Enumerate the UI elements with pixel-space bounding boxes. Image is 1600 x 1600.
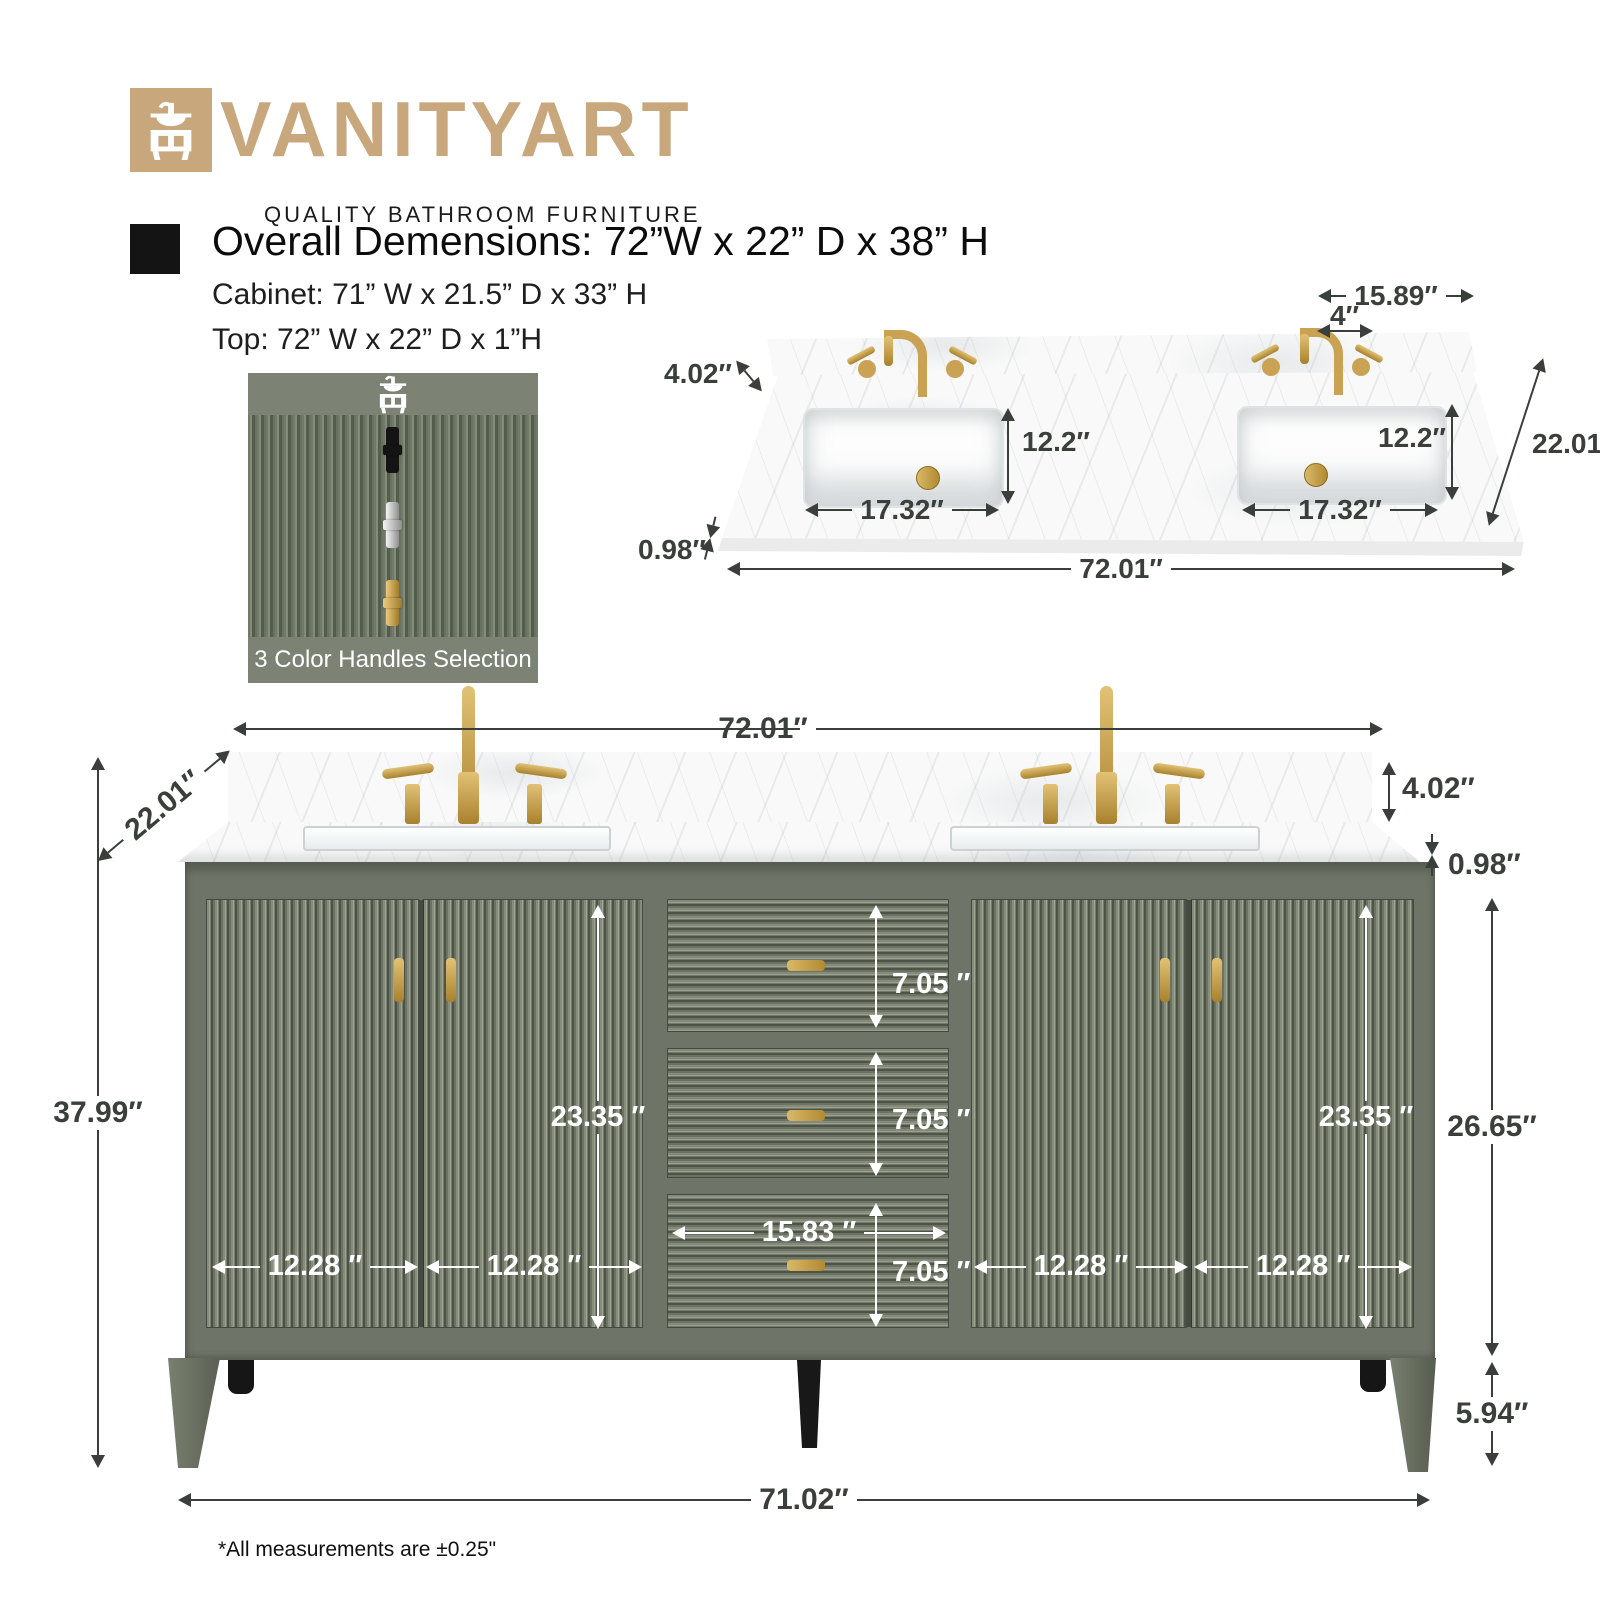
top-spec-line: Top: 72” W x 22” D x 1”H — [212, 323, 542, 357]
door-handle — [394, 958, 404, 1002]
dim-door-width-2: 12.28 ″ — [426, 1250, 642, 1283]
frontview-left-sink-rim — [303, 826, 611, 851]
heading-bullet — [130, 224, 180, 274]
faucet-handle-icon — [1352, 358, 1370, 376]
dim-splash-height-arrow — [731, 356, 767, 396]
dim-splash-height-label: 4.02″ — [664, 358, 732, 390]
dim-overall-height: 37.99″ — [52, 757, 144, 1468]
faucet-handle-icon — [946, 360, 964, 378]
dim-door-width-4: 12.28 ″ — [1194, 1250, 1412, 1283]
topview-right-faucet — [1300, 334, 1309, 364]
door-handle — [1160, 958, 1170, 1002]
vanity-icon — [248, 373, 538, 415]
chrome-handle-option — [386, 502, 399, 548]
dim-drawer2-height-label: 7.05 ″ — [892, 1104, 970, 1137]
topview-right-sink — [1237, 406, 1447, 505]
topview-left-sink — [803, 408, 1004, 508]
brand-name: VANITYART — [220, 84, 694, 175]
dim-backsplash-height-label: 4.02″ — [1402, 772, 1475, 806]
cabinet-leg-front-right — [1390, 1358, 1436, 1472]
cabinet-spec-line: Cabinet: 71” W x 21.5” D x 33” H — [212, 278, 647, 312]
dim-sink-depth-left — [1001, 408, 1015, 504]
dim-drawer1-height — [869, 905, 883, 1028]
vanity-icon — [140, 98, 202, 162]
faucet-handle-icon — [1165, 784, 1180, 824]
gold-handle-option — [386, 580, 399, 626]
door-handle — [446, 958, 456, 1002]
cabinet-leg-front-left — [168, 1358, 220, 1468]
dim-sink-depth-left-label: 12.2″ — [1022, 426, 1090, 458]
drain-icon — [916, 466, 940, 490]
handle-selection-caption: 3 Color Handles Selection — [248, 637, 538, 683]
drawer-handle — [787, 1260, 825, 1271]
cabinet-foot-left — [228, 1360, 254, 1394]
dim-counter-depth-label: 22.01″ — [1532, 428, 1600, 460]
dim-sink-width-right: 17.32″ — [1242, 494, 1438, 526]
dim-base-width: 71.02″ — [178, 1483, 1430, 1517]
cabinet-leg-center — [795, 1360, 823, 1448]
dim-sink-depth-right — [1445, 404, 1459, 500]
frontview-backsplash — [228, 752, 1372, 824]
drain-icon — [1304, 463, 1328, 487]
faucet-handle-icon — [1262, 358, 1280, 376]
drawer-handle — [787, 1110, 825, 1121]
dim-hole-spacing — [1317, 324, 1373, 338]
overall-dimensions-title: Overall Demensions: 72”W x 22” D x 38” H — [212, 218, 989, 265]
dim-sink-width-left: 17.32″ — [805, 494, 999, 526]
topview-left-faucet — [884, 336, 893, 366]
faucet-handle-icon — [527, 784, 542, 824]
faucet-handle-icon — [858, 360, 876, 378]
dim-leg-height: 5.94″ — [1446, 1362, 1538, 1466]
dim-door-width-3: 12.28 ″ — [974, 1250, 1188, 1283]
dim-body-height: 26.65″ — [1446, 898, 1538, 1356]
tolerance-footnote: *All measurements are ±0.25" — [218, 1538, 496, 1562]
dim-sink-depth-right-label: 12.2″ — [1378, 422, 1446, 454]
dim-door-width-1: 12.28 ″ — [212, 1250, 418, 1283]
handle-selection-panel: 3 Color Handles Selection — [248, 373, 538, 683]
faucet-handle-icon — [1043, 784, 1058, 824]
drawer-handle — [787, 960, 825, 971]
dim-counter-thickness — [1425, 834, 1439, 884]
faucet-spout-base — [1096, 772, 1117, 824]
vanityart-logo-icon — [130, 88, 212, 172]
dim-drawer3-height-label: 7.05 ″ — [892, 1256, 970, 1289]
dim-mid-drawer-width: 15.83 ″ — [672, 1216, 946, 1249]
door-handle — [1212, 958, 1222, 1002]
black-handle-option — [386, 427, 399, 473]
dim-overall-width: 72.01″ — [233, 712, 1383, 746]
dim-backsplash-height — [1382, 762, 1396, 822]
dim-drawer1-height-label: 7.05 ″ — [892, 968, 970, 1001]
faucet-spout-base — [458, 772, 479, 824]
cabinet-foot-right — [1360, 1360, 1386, 1392]
dim-drawer2-height — [869, 1052, 883, 1176]
faucet-handle-icon — [405, 784, 420, 824]
dim-counter-thickness-label: 0.98″ — [1448, 848, 1521, 882]
frontview-right-sink-rim — [950, 826, 1260, 851]
dim-counter-width: 72.01″ — [727, 553, 1515, 585]
dim-label: 15.89″ — [1346, 280, 1445, 312]
dim-thickness-label: 0.98″ — [638, 534, 706, 566]
vanity-dimension-sheet: VANITYART QUALITY BATHROOM FURNITURE Ove… — [0, 0, 1600, 1600]
